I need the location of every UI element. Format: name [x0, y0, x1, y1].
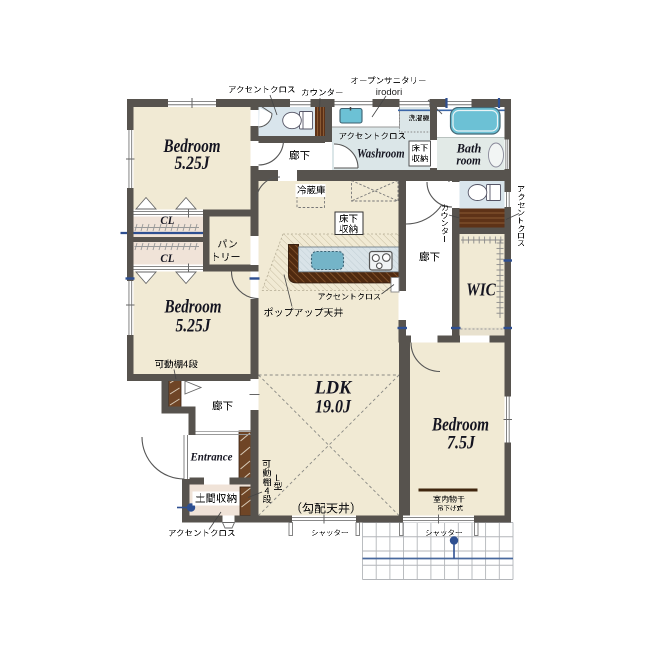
- svg-text:LDK: LDK: [314, 378, 353, 399]
- svg-text:room: room: [456, 154, 481, 168]
- svg-text:19.0J: 19.0J: [315, 397, 351, 418]
- svg-text:7.5J: 7.5J: [447, 433, 475, 454]
- svg-text:Entrance: Entrance: [190, 449, 234, 463]
- svg-text:WIC: WIC: [466, 280, 496, 300]
- svg-text:5.25J: 5.25J: [175, 153, 210, 174]
- svg-text:CL: CL: [160, 213, 174, 227]
- svg-text:Washroom: Washroom: [357, 146, 405, 160]
- svg-text:5.25J: 5.25J: [176, 316, 211, 337]
- svg-text:CL: CL: [160, 251, 174, 265]
- svg-text:irodori: irodori: [376, 87, 402, 98]
- svg-text:Bedroom: Bedroom: [164, 297, 222, 318]
